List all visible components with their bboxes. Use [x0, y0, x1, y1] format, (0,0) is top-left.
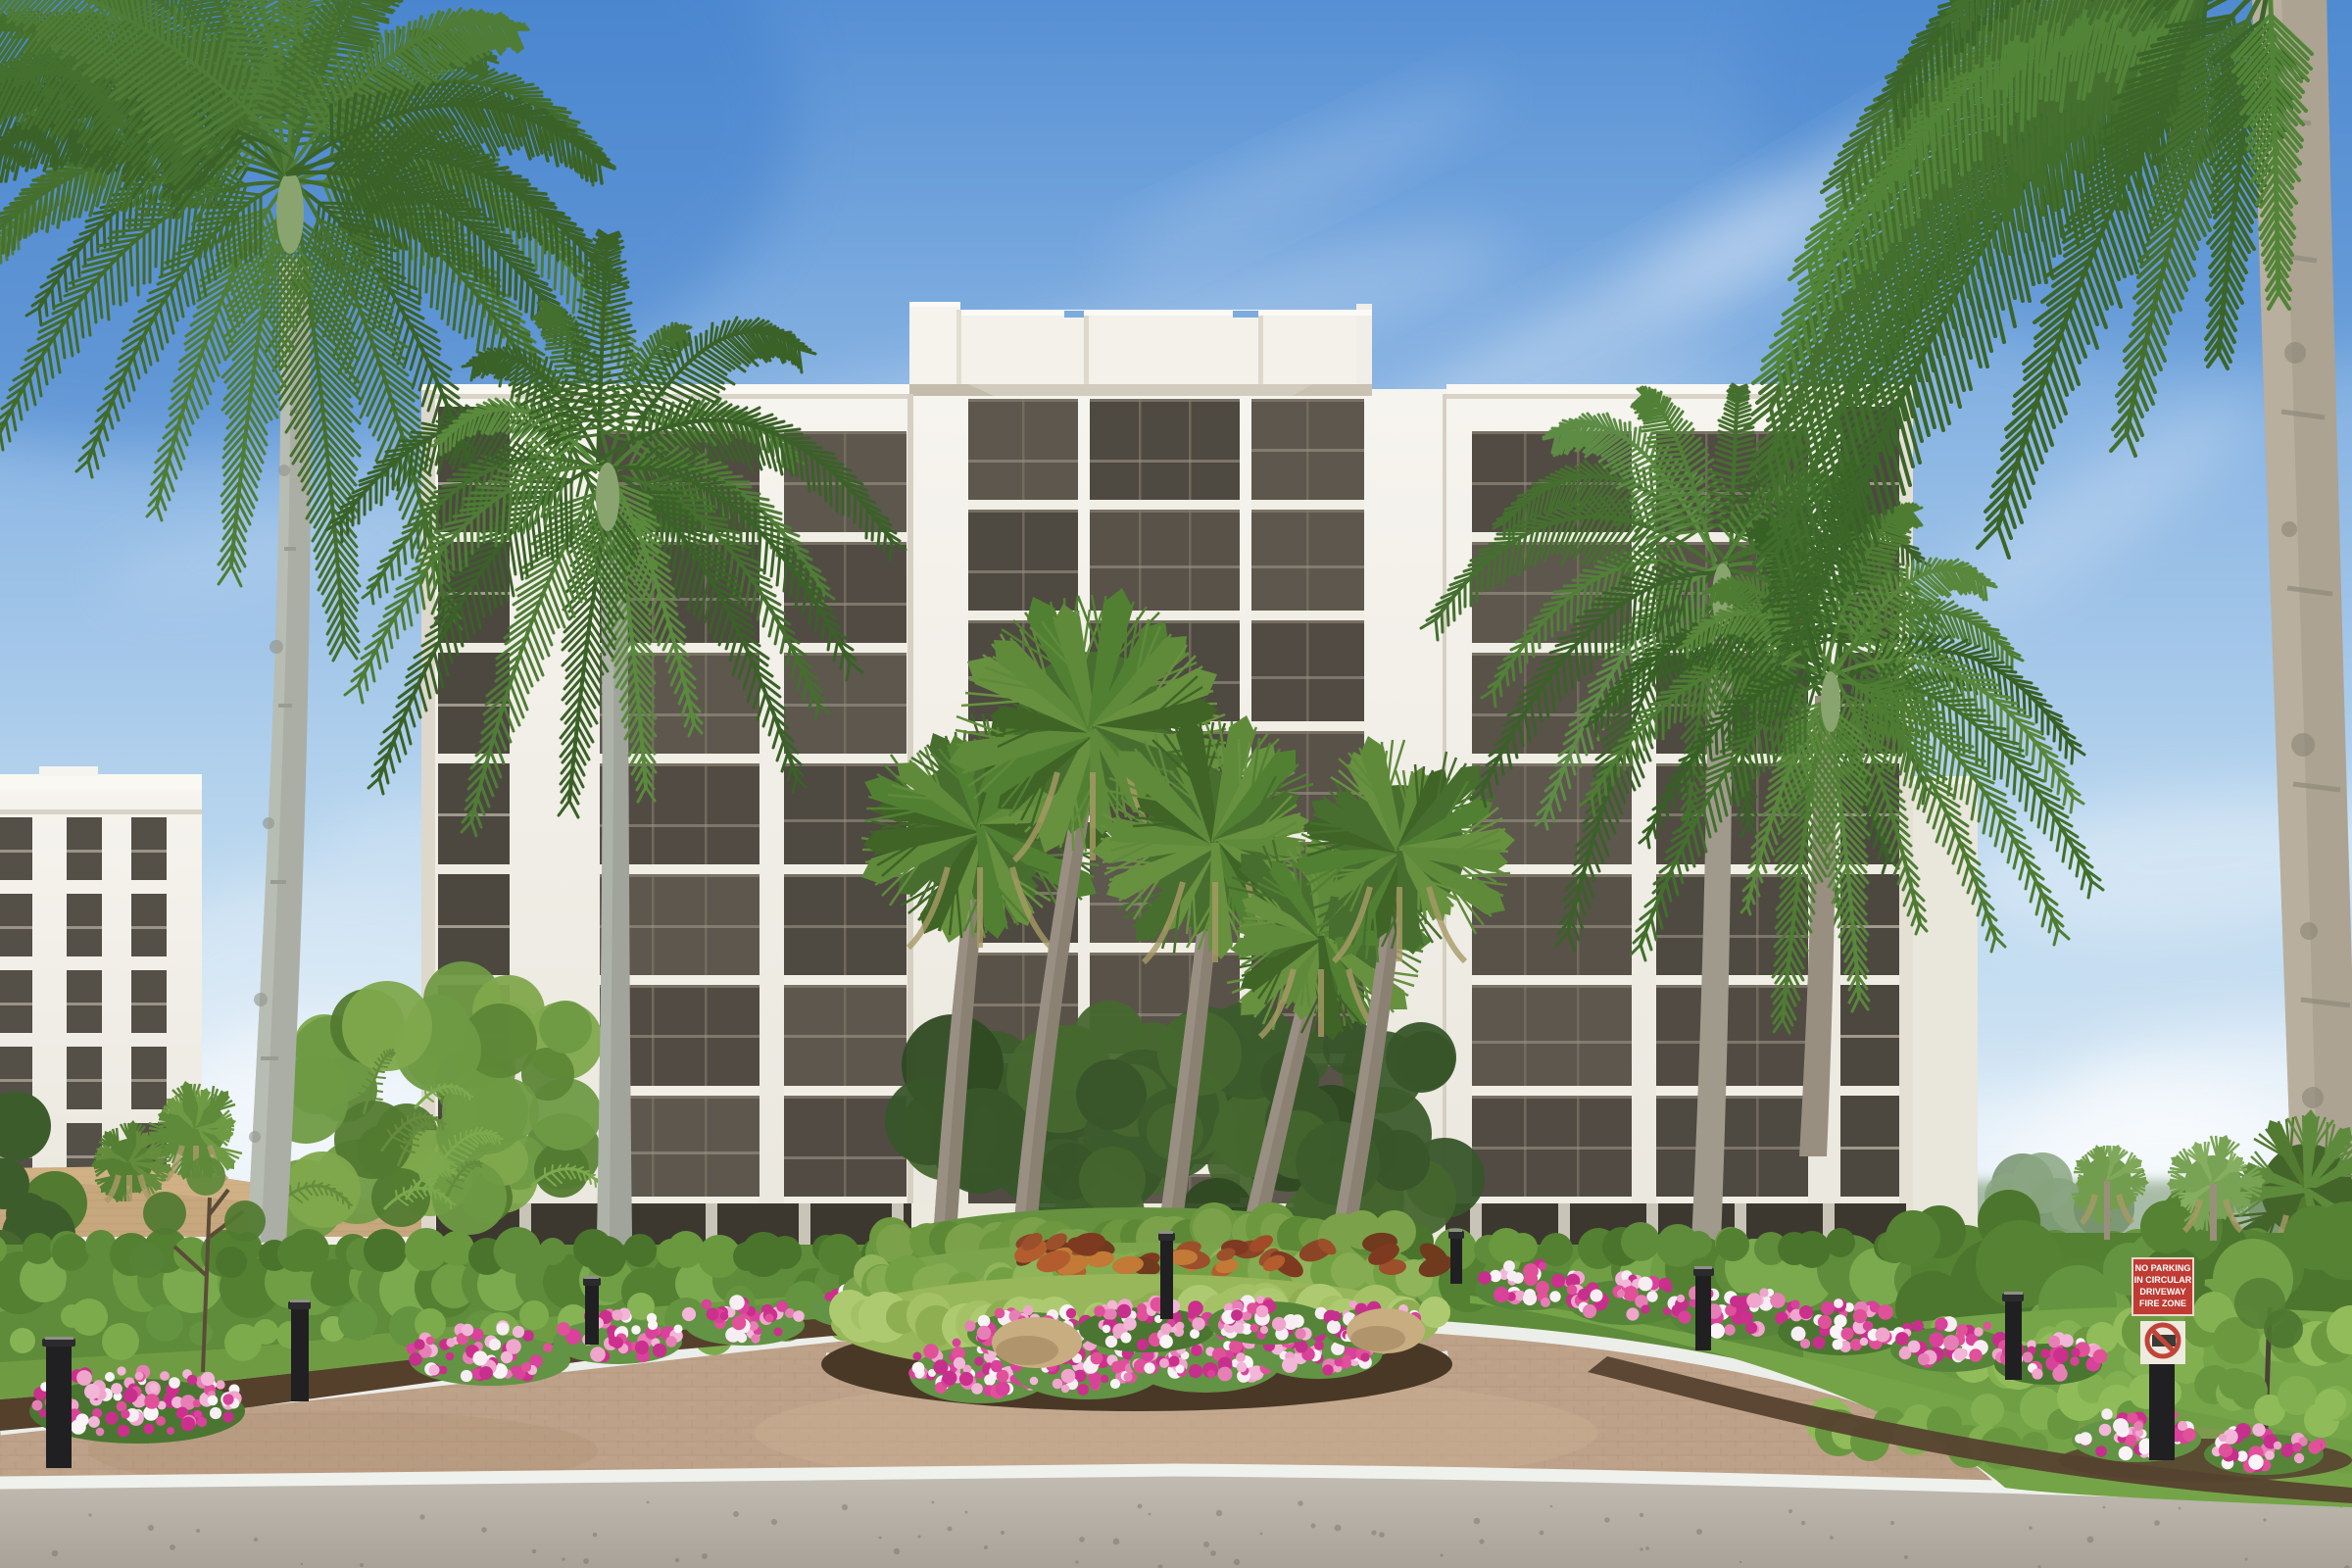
svg-text:IN CIRCULAR: IN CIRCULAR — [2134, 1275, 2192, 1285]
svg-text:DRIVEWAY: DRIVEWAY — [2139, 1287, 2185, 1297]
svg-text:NO PARKING: NO PARKING — [2135, 1263, 2191, 1273]
svg-text:FIRE ZONE: FIRE ZONE — [2139, 1298, 2186, 1308]
